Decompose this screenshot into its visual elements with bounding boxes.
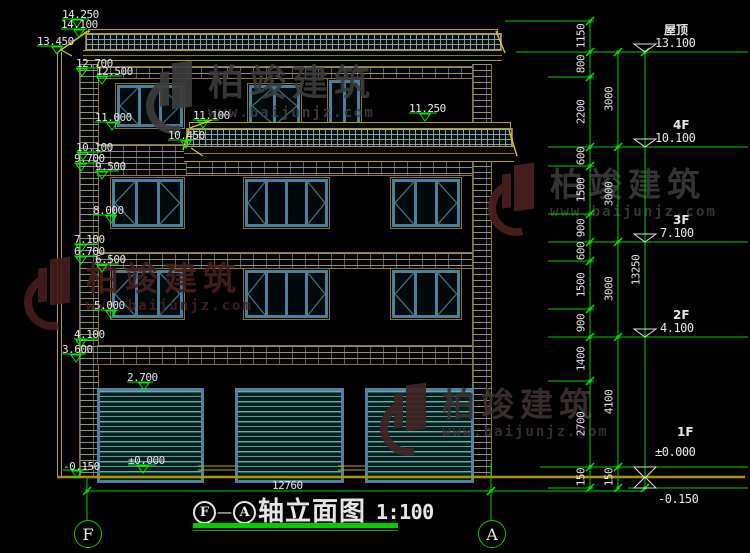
dimension-value: 13250 <box>631 255 642 286</box>
axis-bubble-a-title: A <box>233 501 256 524</box>
dimension-value: 600 <box>576 242 587 260</box>
elevation-label: 12.500 <box>96 66 133 77</box>
dimension-value: 1500 <box>576 178 587 203</box>
elevation-label: 3.600 <box>62 344 93 355</box>
dimension-value: 1500 <box>576 273 587 298</box>
elevation-label: 9.500 <box>95 161 126 172</box>
elevation-label: 2.700 <box>127 372 158 383</box>
title-scale: 1:100 <box>376 502 434 522</box>
elevation-label: 8.000 <box>93 205 124 216</box>
floor-name: 1F <box>677 426 694 438</box>
dimension-value: 3000 <box>604 182 615 207</box>
annotation-labels: 1150800220060015009006001500900140027001… <box>0 0 750 553</box>
elevation-drawing-canvas: 1150800220060015009006001500900140027001… <box>0 0 750 553</box>
elevation-label: 4.100 <box>74 329 105 340</box>
floor-name: 屋顶 <box>664 24 688 36</box>
dimension-value: 800 <box>576 55 587 73</box>
dimension-value: 900 <box>576 314 587 332</box>
title-text: 轴立面图 <box>258 499 366 525</box>
floor-name: 3F <box>673 214 690 226</box>
dimension-value: 4100 <box>604 390 615 415</box>
dimension-value: 2700 <box>576 412 587 437</box>
dimension-value: 150 <box>576 468 587 486</box>
title-underline <box>193 523 398 528</box>
floor-elevation: ±0.000 <box>655 446 695 458</box>
floor-elevation: 10.100 <box>655 132 695 144</box>
dimension-value: 3000 <box>604 277 615 302</box>
elevation-label: 11.000 <box>95 112 132 123</box>
overall-dimension-label: 12760 <box>272 480 303 491</box>
elevation-label: 10.450 <box>168 130 205 141</box>
axis-bubble-f: F <box>74 520 102 548</box>
dimension-value: 1150 <box>576 24 587 49</box>
elevation-label: 5.000 <box>94 300 125 311</box>
elevation-label: 11.250 <box>409 103 446 114</box>
title-block: F — A 轴立面图 1:100 <box>193 499 434 525</box>
floor-elevation: -0.150 <box>658 493 698 505</box>
dimension-value: 600 <box>576 147 587 165</box>
floor-elevation: 13.100 <box>655 37 695 49</box>
dimension-value: 2200 <box>576 100 587 125</box>
elevation-label: ±0.000 <box>128 455 165 466</box>
title-underline-thin <box>193 530 398 531</box>
elevation-label: 6.500 <box>95 254 126 265</box>
elevation-label: 11.100 <box>193 110 230 121</box>
dimension-value: 150 <box>604 468 615 486</box>
elevation-label: 7.100 <box>74 234 105 245</box>
floor-elevation: 4.100 <box>660 322 694 334</box>
dimension-value: 1400 <box>576 347 587 372</box>
elevation-label: 14.100 <box>61 19 98 30</box>
dimension-value: 3000 <box>604 87 615 112</box>
axis-bubble-a: A <box>478 520 506 548</box>
floor-name: 2F <box>673 309 690 321</box>
floor-elevation: 7.100 <box>660 227 694 239</box>
axis-bubble-f-title: F <box>193 501 216 524</box>
elevation-label: -0.150 <box>63 461 100 472</box>
floor-name: 4F <box>673 119 690 131</box>
elevation-label: 13.450 <box>37 36 74 47</box>
title-dash: — <box>217 505 232 520</box>
dimension-value: 900 <box>576 219 587 237</box>
